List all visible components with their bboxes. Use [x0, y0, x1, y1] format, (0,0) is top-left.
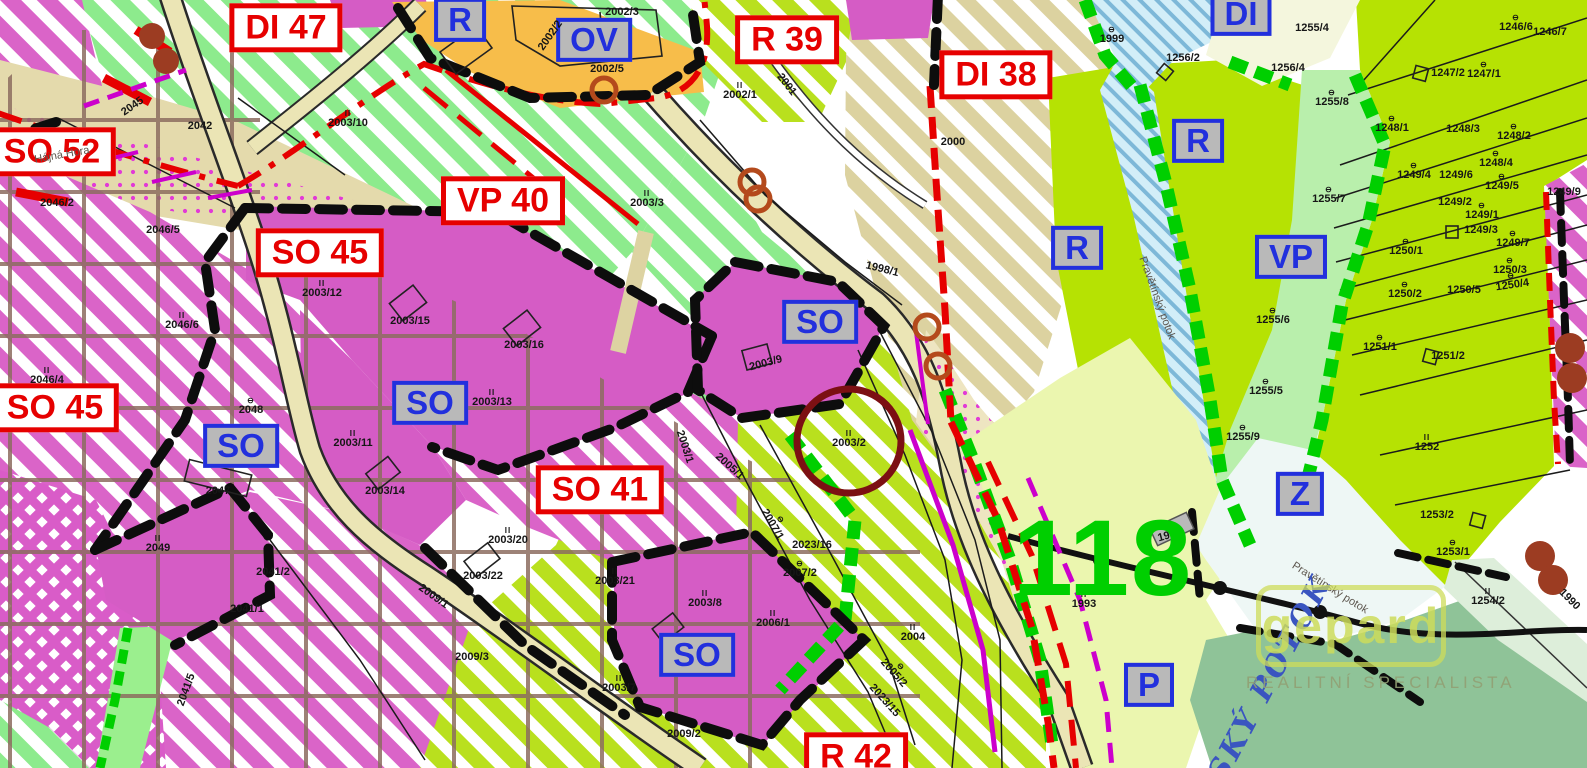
watermark: gepard REALITNÍ SPECIALISTA [1256, 585, 1446, 693]
watermark-logo: gepard [1256, 585, 1446, 667]
watermark-tagline: REALITNÍ SPECIALISTA [1246, 673, 1446, 693]
zoning-map[interactable]: SO 52DI 47R 39DI 38VP 40SO 45SO 45SO 41R… [0, 0, 1587, 768]
